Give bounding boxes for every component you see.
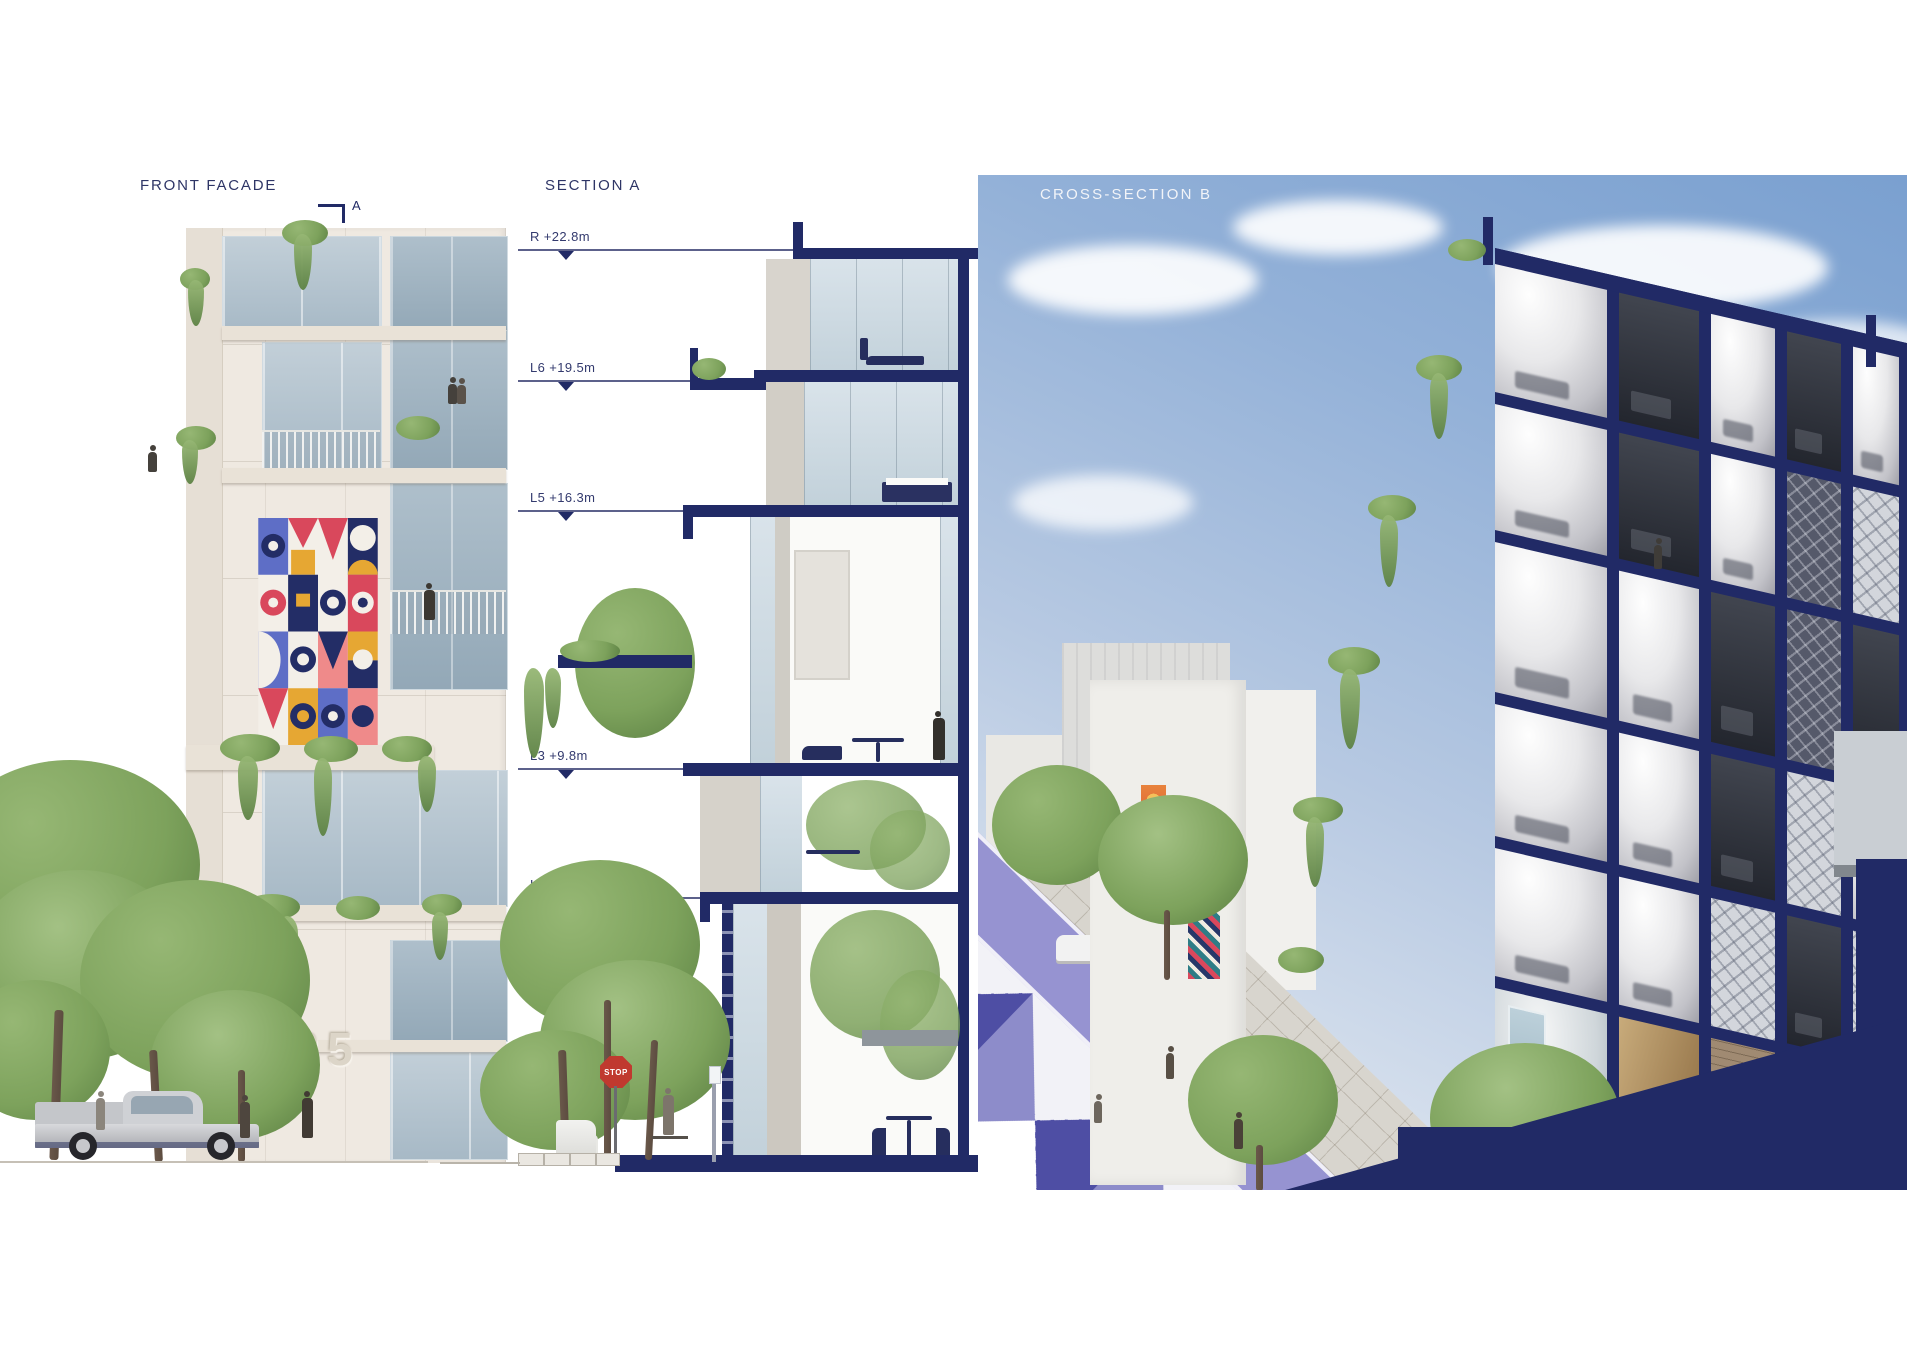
level-line	[518, 768, 685, 770]
roof-stub	[1866, 315, 1876, 367]
section-glazing	[750, 517, 775, 763]
foliage-blob	[336, 896, 380, 920]
cloud	[1008, 245, 1258, 315]
entry-glazing	[733, 904, 767, 1162]
ground-slab	[615, 1155, 987, 1172]
room-cell	[1619, 877, 1699, 1023]
room-cell	[1787, 609, 1841, 771]
courtyard-tree	[880, 970, 960, 1080]
pedestrian	[96, 1098, 105, 1130]
room-cell	[1787, 771, 1841, 915]
room-cell	[1619, 733, 1699, 883]
foliage-blob	[396, 416, 440, 440]
level-marker-l3: L3 +9.8m	[518, 768, 685, 770]
cloud	[1233, 200, 1443, 255]
terrace-planter	[560, 640, 620, 662]
level-marker-l6: L6 +19.5m	[518, 380, 690, 382]
room-cell	[1711, 314, 1775, 457]
room-cell	[1619, 293, 1699, 439]
truck-window	[131, 1096, 193, 1114]
desk	[806, 850, 860, 854]
cyclist	[1094, 1101, 1102, 1123]
room-cell	[1787, 471, 1841, 609]
stop-sign: STOP	[600, 1056, 632, 1088]
pedestrian	[240, 1102, 250, 1138]
room-cell	[1495, 264, 1607, 418]
chaise-lounge	[866, 356, 924, 365]
balcony-lip	[683, 505, 693, 539]
room-cell	[1619, 571, 1699, 739]
pedestrian	[1166, 1053, 1174, 1079]
scooter-deck	[652, 1136, 688, 1139]
tree-through-glass	[870, 810, 950, 890]
interior-wall	[775, 517, 790, 763]
level-triangle-icon	[558, 770, 574, 779]
room-cell	[1711, 592, 1775, 757]
room-cell	[1711, 898, 1775, 1041]
lounge-chairs	[802, 746, 842, 760]
section-a-title: SECTION A	[545, 177, 641, 194]
balcony-vine	[1380, 515, 1398, 587]
adjacent-building	[1834, 731, 1907, 877]
floor-slab-l3	[683, 763, 969, 776]
closet-wall	[766, 382, 804, 505]
level-marker-l5: L5 +16.3m	[518, 510, 685, 512]
room-cell	[1495, 848, 1607, 1002]
street-tree	[1188, 1035, 1338, 1165]
room-cell	[1853, 347, 1899, 486]
balcony-plant	[1278, 947, 1324, 973]
balcony-plant	[1448, 239, 1486, 261]
terrace-planter	[692, 358, 726, 380]
level-triangle-icon	[558, 512, 574, 521]
ground-line	[0, 1161, 428, 1163]
elevator-core	[767, 904, 801, 1162]
table-leg	[907, 1120, 911, 1160]
truck-wheel	[69, 1132, 97, 1160]
level-triangle-icon	[558, 251, 574, 260]
interior-wall	[766, 259, 810, 375]
room-cell	[1787, 331, 1841, 471]
tree-trunk	[1164, 910, 1170, 980]
architecture-presentation-board: FRONT FACADE A	[0, 0, 1920, 1358]
level-line	[518, 380, 690, 382]
pedestrian	[302, 1098, 313, 1138]
balcony-vine	[1306, 817, 1324, 887]
truck-wheel	[207, 1132, 235, 1160]
foliage-blob	[304, 736, 358, 762]
roof-stub	[1483, 217, 1493, 265]
section-cut-marker-label: A	[352, 198, 361, 213]
room-cell	[1495, 704, 1607, 862]
room-cell	[1711, 754, 1775, 901]
stop-sign-pole	[614, 1086, 617, 1160]
floor-slab-l2	[700, 892, 969, 904]
hanging-vine	[238, 756, 258, 820]
scooter-rider	[663, 1095, 674, 1135]
section-glazing	[760, 776, 802, 892]
balcony-vine	[1430, 373, 1448, 439]
bed	[882, 482, 952, 502]
floor-slab-l5	[683, 505, 969, 517]
pickup-truck	[35, 1086, 267, 1162]
geometric-mural	[258, 518, 378, 745]
chaise-lounge	[860, 338, 868, 360]
ground-line	[440, 1162, 520, 1164]
level-triangle-icon	[558, 382, 574, 391]
cross-section-b-title: CROSS-SECTION B	[1040, 186, 1212, 203]
room-cell	[1853, 487, 1899, 624]
front-facade-title: FRONT FACADE	[140, 177, 277, 194]
truck-bed	[35, 1102, 123, 1126]
balcony-person	[424, 590, 435, 620]
pedestrian	[1234, 1119, 1243, 1149]
room-cell	[1711, 454, 1775, 595]
wardrobe	[794, 550, 850, 680]
section-cut-marker-line	[318, 204, 345, 207]
level-line	[518, 510, 685, 512]
bed-mattress	[886, 478, 948, 485]
ground-cut-mass	[1398, 1127, 1907, 1190]
terrace-slab	[690, 378, 768, 390]
section-drawing	[690, 210, 987, 1176]
canopy-band	[862, 1030, 958, 1046]
cloud	[1013, 475, 1193, 530]
section-cut-marker-line	[342, 204, 345, 223]
balcony-lip	[700, 892, 710, 922]
balcony-vine	[1340, 669, 1360, 749]
room-cell	[1495, 404, 1607, 556]
street-tree	[1098, 795, 1248, 925]
sidewalk-pavers	[518, 1153, 620, 1166]
room-cell	[1495, 542, 1607, 718]
room-cell	[1787, 915, 1841, 1055]
table-leg	[876, 742, 880, 762]
floor-slab-l6	[754, 370, 969, 382]
balcony-person	[1654, 545, 1662, 569]
closet-wall	[700, 776, 760, 892]
cross-section-b-panel: CROSS-SECTION B	[978, 175, 1907, 1190]
balcony-person	[148, 452, 157, 472]
street-lamp-pole	[712, 1078, 716, 1162]
tree-trunk	[1256, 1145, 1263, 1190]
stop-sign-label: STOP	[604, 1068, 628, 1077]
street-lamp-head	[709, 1066, 721, 1084]
balcony-railing	[262, 430, 380, 470]
interior-person	[933, 718, 945, 760]
